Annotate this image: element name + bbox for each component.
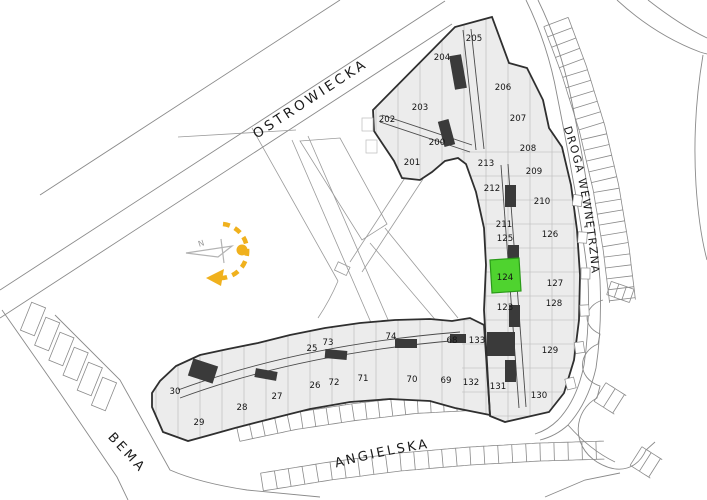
parking-stall-divider xyxy=(326,408,329,425)
street-edge xyxy=(545,473,620,497)
courtyard-path xyxy=(292,140,372,325)
unit-label-129: 129 xyxy=(542,346,558,356)
unit-label-209: 209 xyxy=(526,167,542,177)
parking-stall-divider xyxy=(599,221,625,225)
courtyard-path xyxy=(318,281,338,318)
unit-label-29: 29 xyxy=(194,418,205,428)
parking-stall-divider xyxy=(442,449,444,467)
unit-label-203: 203 xyxy=(412,103,428,113)
unit-label-25: 25 xyxy=(307,344,318,354)
parking-stall-divider xyxy=(629,289,634,302)
balcony xyxy=(580,305,590,316)
site-plan: 2002012022032042052062072082092102112122… xyxy=(0,0,707,500)
courtyard-path xyxy=(252,128,338,281)
parking-stall-divider xyxy=(544,17,568,26)
parking-stall-divider xyxy=(579,122,604,130)
parking-stall-divider xyxy=(594,188,620,192)
parking-stall-divider xyxy=(526,444,527,462)
street-edge xyxy=(648,0,707,38)
parking-stall-divider xyxy=(639,453,651,472)
street-label-ostrowiecka: OSTROWIECKA xyxy=(250,56,371,143)
unit-label-72: 72 xyxy=(329,378,340,388)
terrace xyxy=(362,118,373,131)
street-label-bema: BEMA xyxy=(104,430,149,476)
parking-stall-divider xyxy=(603,389,615,408)
unit-label-213: 213 xyxy=(478,159,494,169)
parking-stall xyxy=(91,377,116,410)
selected-unit-label[interactable]: 124 xyxy=(497,273,513,283)
street-edge xyxy=(40,0,340,195)
unit-label-26: 26 xyxy=(310,381,321,391)
unit-label-27: 27 xyxy=(272,392,283,402)
parking-stall-divider xyxy=(552,38,576,47)
unit-label-201: 201 xyxy=(404,158,420,168)
parking-stall-divider xyxy=(484,446,485,464)
parking-stall-divider xyxy=(456,448,458,466)
stair-core xyxy=(505,185,516,207)
terrace xyxy=(366,140,377,153)
parking-stall-divider xyxy=(568,442,569,460)
unit-label-208: 208 xyxy=(520,144,536,154)
parking-stall-divider xyxy=(302,466,305,484)
parking-stall-divider xyxy=(288,469,291,487)
balcony xyxy=(565,377,576,390)
unit-label-202: 202 xyxy=(379,115,395,125)
parking-stall-divider xyxy=(261,473,264,491)
unit-label-74: 74 xyxy=(386,332,397,342)
parking-stall-divider xyxy=(316,464,319,482)
parking-stall-divider xyxy=(554,443,555,461)
parking-stall-divider xyxy=(274,471,277,489)
parking-strip-edge xyxy=(630,465,650,478)
parking-stall xyxy=(20,302,45,335)
stair-core xyxy=(487,332,515,356)
unit-label-28: 28 xyxy=(237,403,248,413)
courtyard-path xyxy=(308,136,389,322)
unit-label-130: 130 xyxy=(531,391,547,401)
parking-stall-divider xyxy=(569,91,594,99)
parking-stall-divider xyxy=(498,445,499,463)
unit-label-132: 132 xyxy=(463,378,479,388)
parking-stall xyxy=(77,362,102,395)
unit-label-204: 204 xyxy=(434,53,450,63)
unit-label-69: 69 xyxy=(441,376,452,386)
parking-stall-divider xyxy=(339,406,342,423)
north-arrow-tail xyxy=(221,239,224,263)
stair-core xyxy=(505,360,516,382)
parking-stall xyxy=(49,332,74,365)
unit-label-123: 123 xyxy=(497,303,513,313)
unit-label-212: 212 xyxy=(484,184,500,194)
unit-label-125: 125 xyxy=(497,234,513,244)
parking-strip-edge xyxy=(263,459,604,491)
parking-strip-edge xyxy=(594,401,614,414)
balcony xyxy=(574,341,584,353)
parking-stall-divider xyxy=(589,166,614,172)
unit-label-68: 68 xyxy=(447,336,458,346)
unit-label-127: 127 xyxy=(547,279,563,289)
parking-stall-divider xyxy=(563,70,588,78)
unit-label-207: 207 xyxy=(510,114,526,124)
parking-stall-divider xyxy=(566,80,591,88)
parking-stall-divider xyxy=(573,101,598,109)
parking-stall-divider xyxy=(274,417,278,434)
unit-label-126: 126 xyxy=(542,230,558,240)
courtyard-path xyxy=(350,167,412,262)
unit-label-205: 205 xyxy=(466,34,482,44)
unit-label-133: 133 xyxy=(469,336,485,346)
parking-stall-divider xyxy=(604,254,630,257)
parking-stall-divider xyxy=(378,401,380,418)
parking-stall-divider xyxy=(313,410,316,427)
parking-stall xyxy=(63,347,88,380)
unit-label-70: 70 xyxy=(407,375,418,385)
parking-stall-divider xyxy=(605,265,631,268)
parking-stall-divider xyxy=(428,451,430,469)
parking-stall-divider xyxy=(581,134,606,140)
site-plan-page: 2002012022032042052062072082092102112122… xyxy=(0,0,707,500)
parking-stall-divider xyxy=(614,284,619,297)
street-label-angielska: ANGIELSKA xyxy=(333,437,430,471)
parking-stall xyxy=(35,317,60,350)
parking-stall-divider xyxy=(365,402,367,419)
street-edge xyxy=(695,55,707,260)
parking-stall-divider xyxy=(630,447,642,466)
parking-stall-divider xyxy=(582,442,583,460)
compass-north-label: N xyxy=(197,238,205,248)
parking-stall-divider xyxy=(540,443,541,461)
parking-stall-divider xyxy=(548,28,572,37)
parking-stall-divider xyxy=(330,462,332,480)
parking-stall-divider xyxy=(576,112,601,120)
parking-strip-edge xyxy=(606,383,626,396)
parking-stall-divider xyxy=(470,447,471,465)
unit-label-73: 73 xyxy=(323,338,334,348)
compass: N xyxy=(186,224,248,286)
street-edge xyxy=(2,310,128,500)
parking-stall-divider xyxy=(613,395,625,414)
street-edge xyxy=(617,0,707,54)
unit-label-210: 210 xyxy=(534,197,550,207)
parking-stall-divider xyxy=(391,399,393,416)
unit-label-128: 128 xyxy=(546,299,562,309)
unit-label-206: 206 xyxy=(495,83,511,93)
parking-stall-divider xyxy=(300,412,303,429)
stair-core xyxy=(325,349,348,360)
parking-stall-divider xyxy=(287,414,291,431)
rotation-arc-arrowhead xyxy=(206,269,224,286)
parking-stall-divider xyxy=(414,452,416,470)
street-edge xyxy=(0,24,452,318)
unit-label-200: 200 xyxy=(429,138,445,148)
parking-stall-divider xyxy=(352,404,355,421)
parking-stall-divider xyxy=(584,145,609,151)
parking-stall-divider xyxy=(649,459,661,478)
unit-label-30: 30 xyxy=(170,387,181,397)
rotation-arc-dot xyxy=(237,245,248,256)
parking-stall-divider xyxy=(595,199,621,203)
north-arrow-icon xyxy=(186,246,232,257)
parking-stall-divider xyxy=(607,276,633,279)
unit-label-131: 131 xyxy=(490,382,506,392)
parking-stall-divider xyxy=(586,155,611,161)
street-edge xyxy=(568,425,615,462)
unit-label-71: 71 xyxy=(358,374,369,384)
courtyard-path xyxy=(362,179,423,272)
parking-stall-divider xyxy=(512,445,513,463)
parking-stall-divider xyxy=(594,383,606,402)
parking-stall-divider xyxy=(603,243,629,247)
street-edge xyxy=(578,300,655,469)
unit-label-211: 211 xyxy=(496,220,512,230)
parking-stall-divider xyxy=(622,287,627,300)
stair-core xyxy=(395,339,417,348)
parking-stall-divider xyxy=(591,177,616,183)
parking-stall-divider xyxy=(601,232,627,236)
parking-stall-divider xyxy=(597,210,623,214)
parking-stall-divider xyxy=(596,441,597,459)
